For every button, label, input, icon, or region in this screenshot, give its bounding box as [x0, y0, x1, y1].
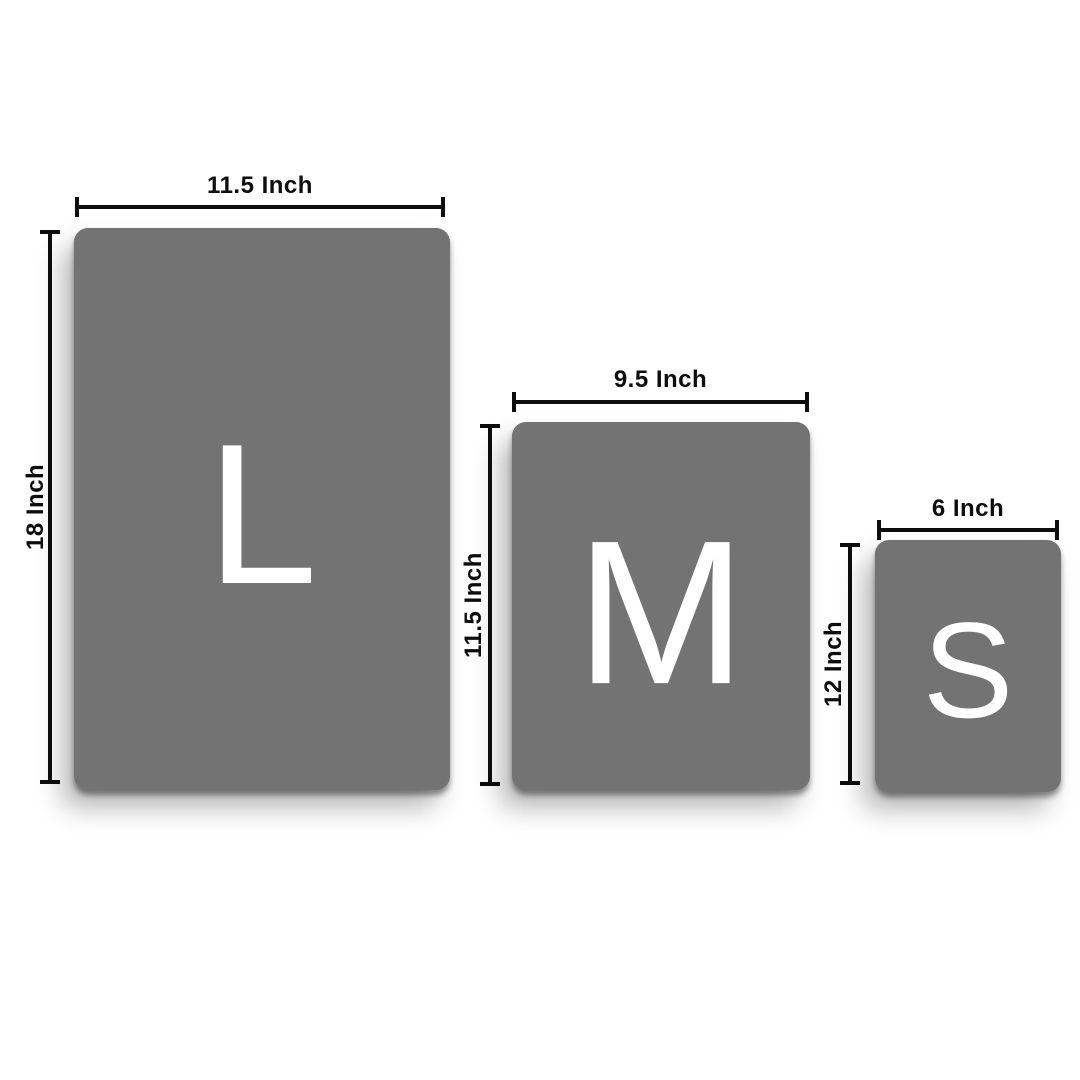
size-box-large: L [74, 228, 450, 790]
height-dimension-label-large: 18 Inch [21, 230, 50, 784]
size-comparison-diagram: 11.5 Inch 18 Inch L 9.5 Inch 11.5 Inch M… [0, 0, 1080, 1080]
width-dimension-label-medium: 9.5 Inch [512, 366, 809, 394]
height-dimension-line-large [48, 230, 52, 784]
size-letter-large: L [206, 415, 317, 615]
size-letter-small: S [923, 602, 1014, 738]
width-dimension-line-large [75, 205, 445, 209]
height-dimension-line-small [848, 543, 852, 785]
width-dimension-line-medium [512, 400, 809, 404]
size-box-small: S [875, 540, 1061, 792]
width-dimension-label-large: 11.5 Inch [75, 172, 445, 200]
height-dimension-line-medium [488, 424, 492, 786]
width-dimension-line-small [877, 528, 1059, 532]
width-dimension-label-small: 6 Inch [877, 495, 1059, 523]
size-box-medium: M [512, 422, 810, 790]
height-dimension-label-small: 12 Inch [819, 543, 848, 785]
height-dimension-label-medium: 11.5 Inch [459, 424, 488, 786]
size-letter-medium: M [576, 510, 747, 715]
